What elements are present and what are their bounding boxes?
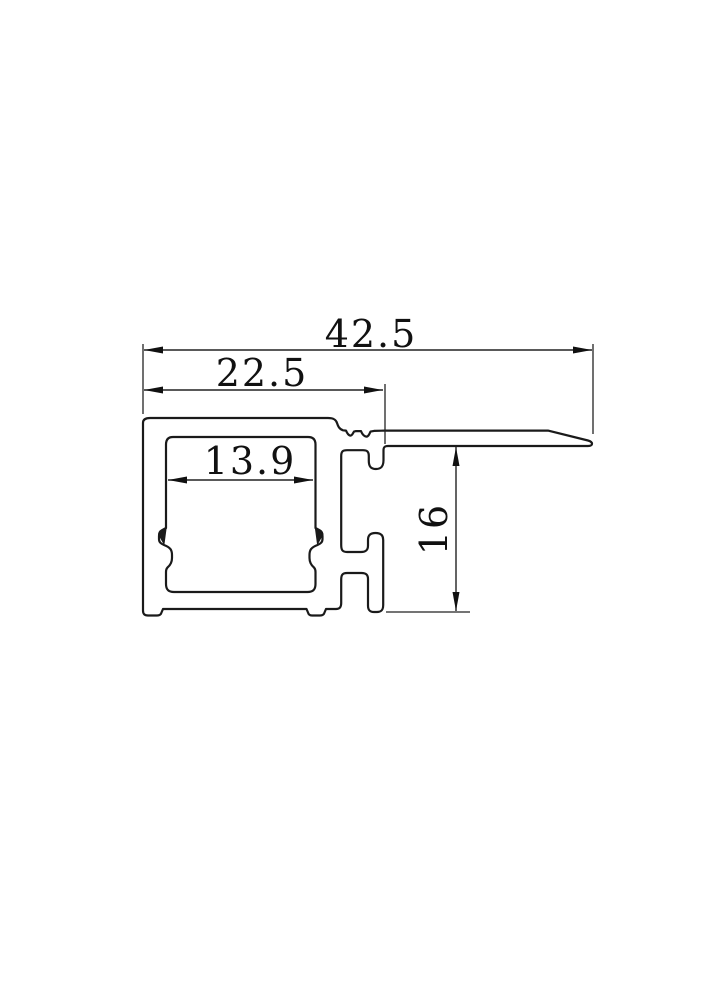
dim-height-label: 16 bbox=[412, 503, 456, 555]
arrowhead-left bbox=[144, 347, 163, 354]
drawing-canvas: 42.5 22.5 13.9 16 bbox=[0, 0, 707, 1000]
dimension-height: 16 bbox=[412, 447, 460, 611]
arrowhead-right bbox=[364, 387, 383, 394]
profile-technical-drawing: 42.5 22.5 13.9 16 bbox=[0, 0, 707, 1000]
arrowhead-right bbox=[573, 347, 592, 354]
dim-total-width-label: 42.5 bbox=[325, 312, 418, 356]
dimension-channel-width: 22.5 bbox=[144, 351, 383, 395]
arrowhead-bottom bbox=[453, 592, 460, 611]
dimension-total-width: 42.5 bbox=[144, 312, 592, 356]
dim-inner-width-label: 13.9 bbox=[204, 439, 297, 483]
dim-channel-width-label: 22.5 bbox=[216, 351, 309, 395]
arrowhead-top bbox=[453, 447, 460, 466]
arrowhead-left bbox=[144, 387, 163, 394]
